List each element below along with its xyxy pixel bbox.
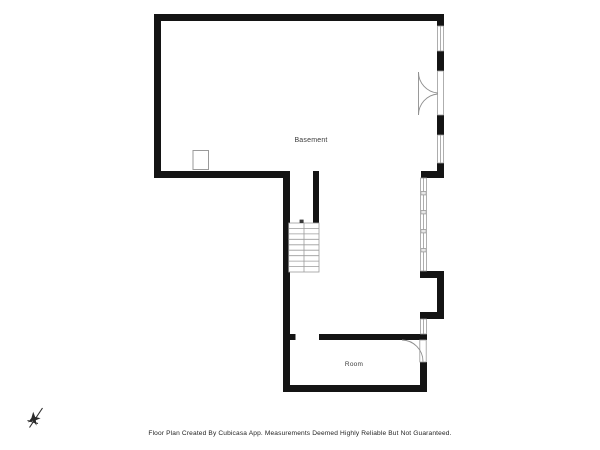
floor-plan-drawing xyxy=(0,0,600,450)
disclaimer-text: Floor Plan Created By Cubicasa App. Meas… xyxy=(0,430,600,437)
wall-room-top xyxy=(319,334,421,340)
wall-right-seg3 xyxy=(437,115,444,135)
basement-room-label: Basement xyxy=(281,137,341,144)
window-tick xyxy=(421,211,426,214)
door-swing-arc xyxy=(418,72,437,93)
wall-room-stub xyxy=(288,334,296,340)
door-swing-arc xyxy=(418,94,437,115)
wall-basement-bottom xyxy=(154,171,289,178)
room-door-icon xyxy=(402,340,426,362)
walls xyxy=(154,14,444,392)
floor-plan-page: Basement Room Floor Plan Created By Cubi… xyxy=(0,0,600,450)
wall-bottom xyxy=(283,385,427,392)
window-tick xyxy=(421,192,426,195)
north-arrow-icon xyxy=(28,408,43,428)
wall-top xyxy=(154,14,444,21)
wall-right-seg2 xyxy=(437,51,444,71)
wall-lower-left xyxy=(283,171,290,392)
staircase-icon xyxy=(289,220,319,272)
wall-bump-bottom xyxy=(420,312,444,319)
french-door-icon xyxy=(418,71,443,115)
fixture-icon xyxy=(193,151,209,170)
window-tick xyxy=(421,249,426,252)
stair-direction-marker xyxy=(300,220,304,223)
wall-right-step xyxy=(421,171,444,178)
window-tick xyxy=(421,230,426,233)
room-label: Room xyxy=(329,361,379,368)
wall-left xyxy=(154,14,161,178)
wall-bump-right xyxy=(437,271,444,319)
door-frame xyxy=(438,71,444,115)
wall-right-junction xyxy=(420,334,427,340)
wall-right-seg1 xyxy=(437,14,444,26)
